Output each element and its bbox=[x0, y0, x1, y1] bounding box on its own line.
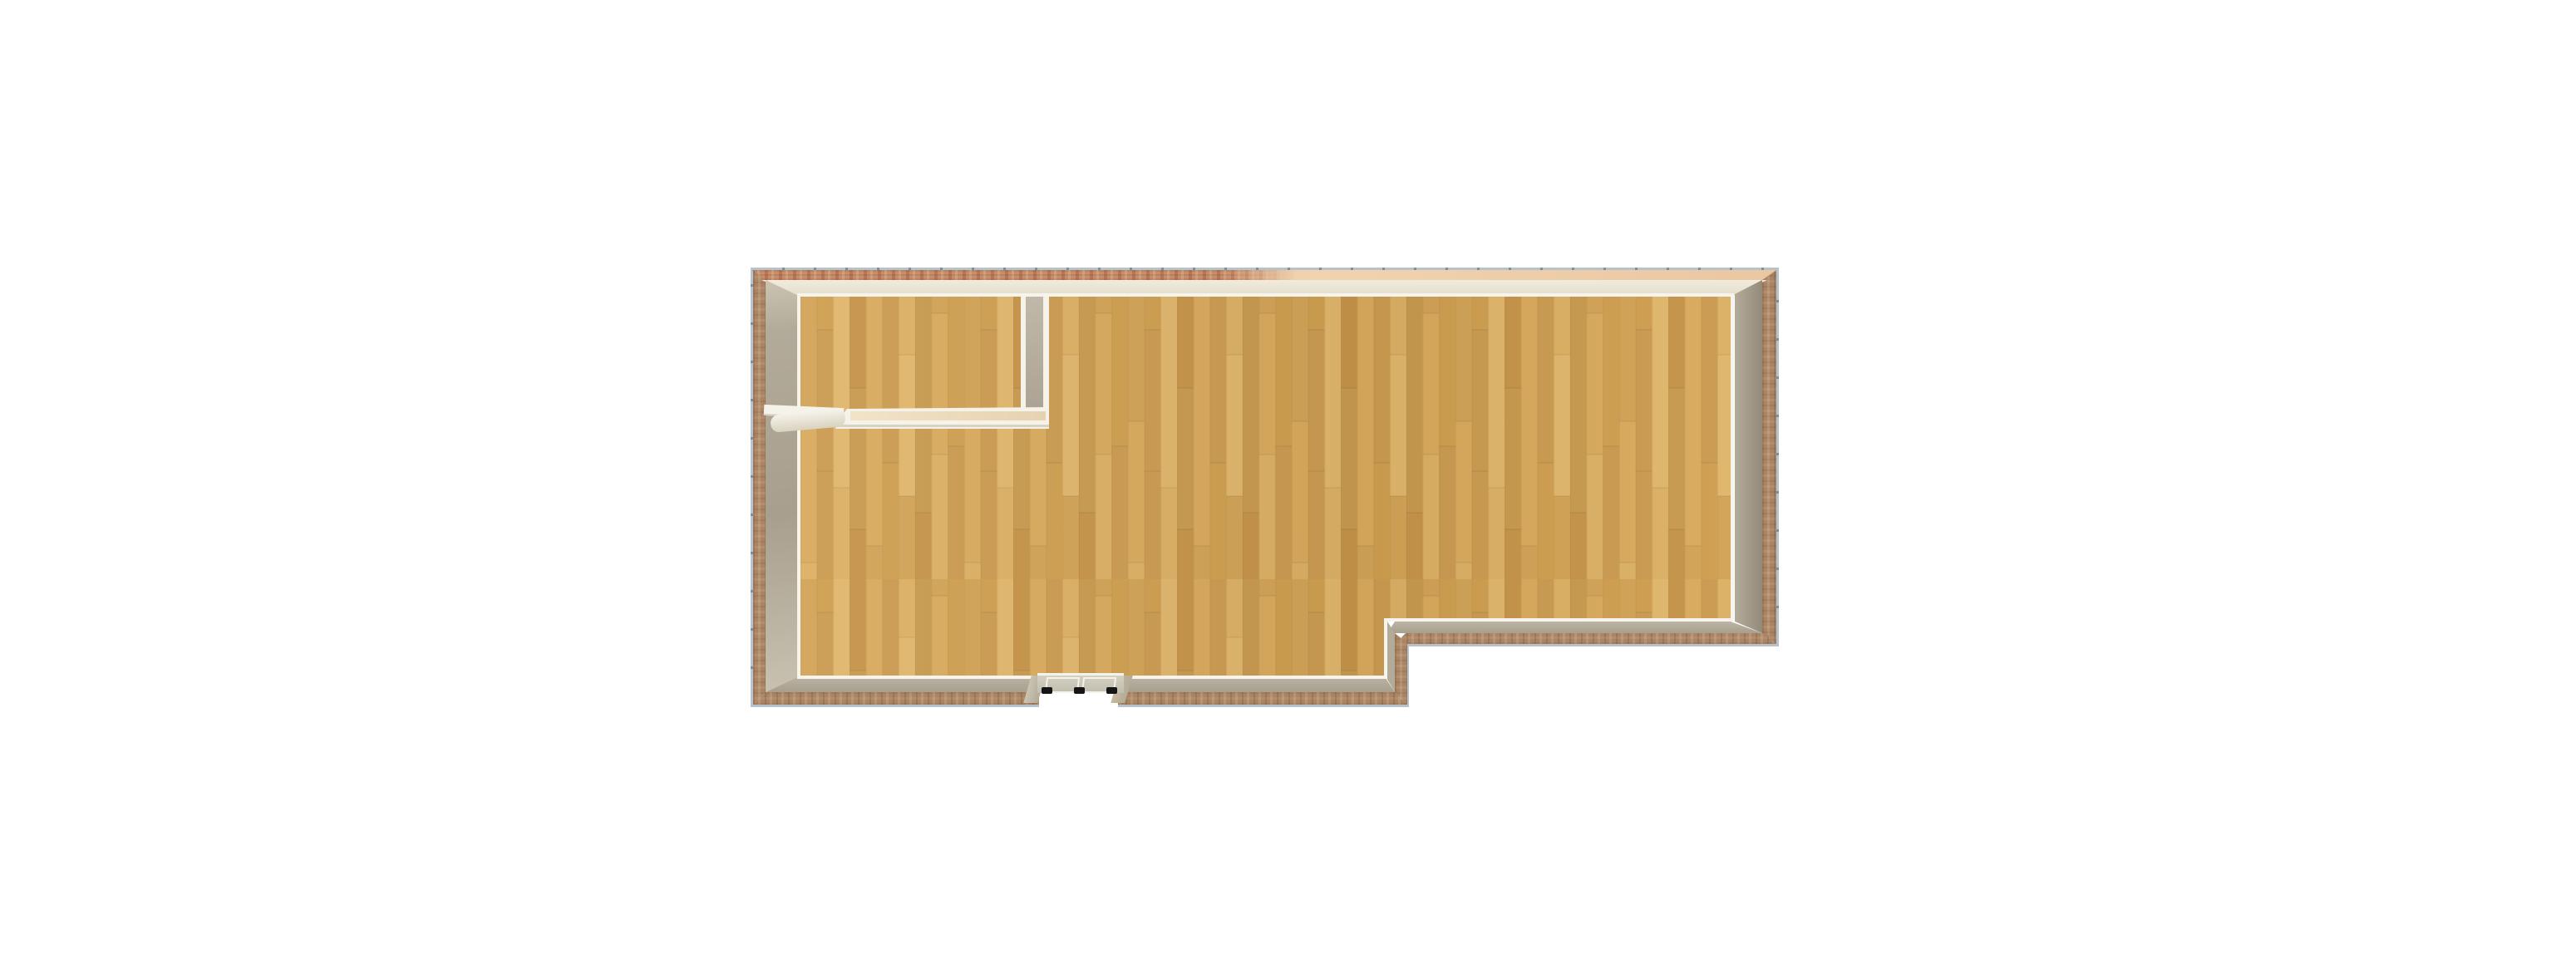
entry-door-stop bbox=[1106, 687, 1117, 694]
wall-outer-edge-left bbox=[751, 268, 753, 707]
wall-outer-edge-right bbox=[1776, 270, 1779, 646]
wall-bottom-right-cap bbox=[1395, 633, 1776, 644]
partition-wall-horizontal bbox=[834, 407, 1049, 429]
entry-door-stop bbox=[1074, 687, 1085, 694]
floorplan-canvas bbox=[751, 266, 1779, 707]
page-background bbox=[0, 0, 2576, 978]
wall-outer-edge-top bbox=[751, 268, 1779, 270]
partition-wall-horizontal-cap bbox=[850, 411, 1046, 420]
entry-sill-trim-line bbox=[1037, 673, 1124, 676]
wall-right-face bbox=[1735, 280, 1762, 633]
entry-door-stop bbox=[1042, 687, 1052, 694]
wall-outer-edge-bottom-right bbox=[1396, 644, 1779, 646]
wall-outer-edge-step bbox=[1407, 644, 1409, 705]
partition-wall-shadow bbox=[835, 425, 1049, 427]
wall-top-cap bbox=[751, 270, 1779, 280]
wall-left-cap bbox=[753, 270, 766, 705]
wall-step-cap bbox=[1395, 633, 1407, 705]
wall-bottom-right-face bbox=[1387, 622, 1762, 633]
wall-top-cap-brick-section bbox=[751, 270, 1299, 280]
wall-right-cap bbox=[1762, 270, 1776, 644]
wall-left-face bbox=[766, 280, 800, 705]
